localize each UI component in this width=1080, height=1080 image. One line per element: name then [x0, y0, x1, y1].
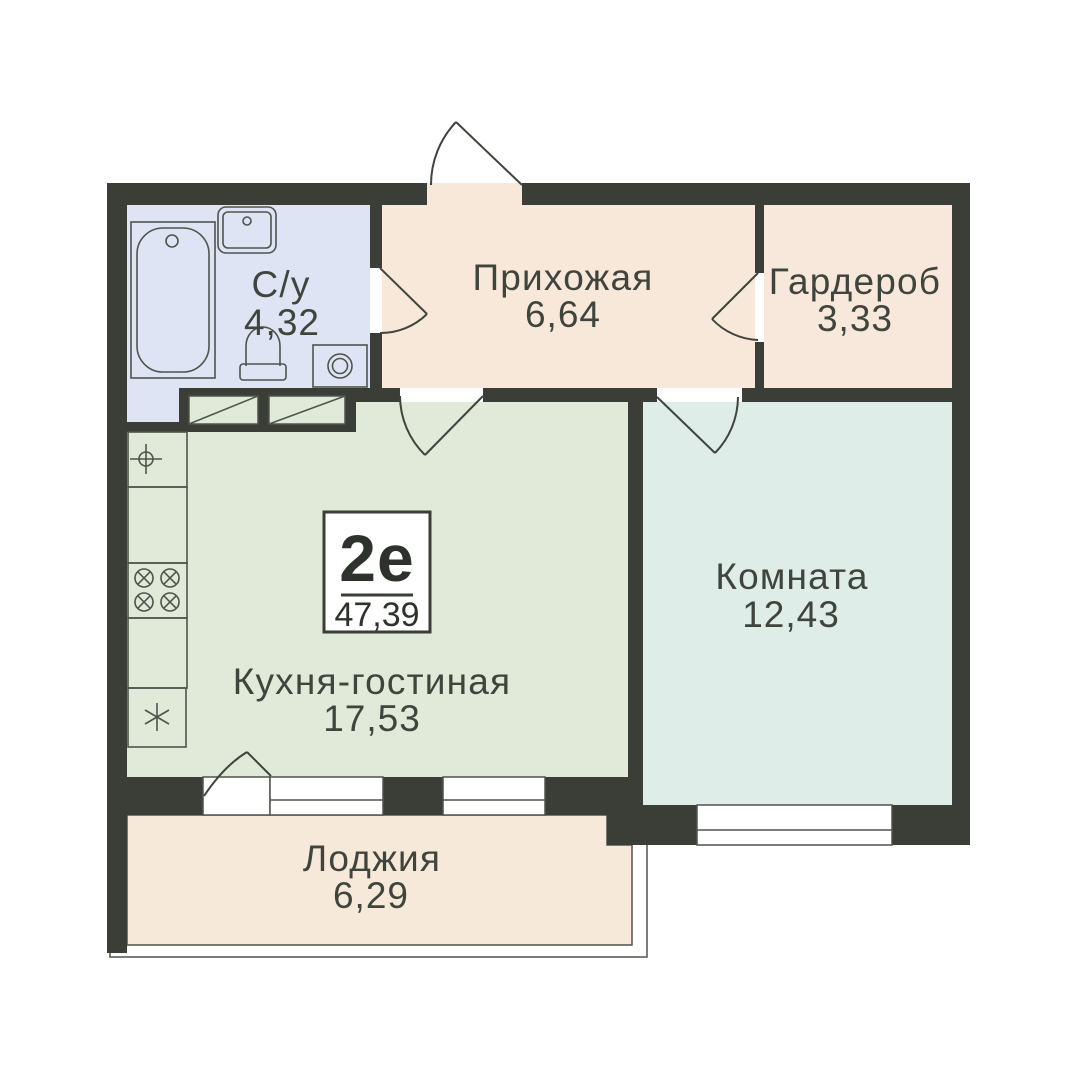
kitchen-window-2 — [443, 777, 545, 815]
loggia-label: Лоджия — [303, 838, 441, 879]
unit-badge: 2е 47,39 — [324, 512, 430, 634]
floor-plan-svg: 2е 47,39 С/у 4,32 Прихожая 6,64 Гардероб… — [0, 0, 1080, 1080]
room-label: Комната — [715, 556, 868, 597]
wardrobe-label: Гардероб — [769, 261, 941, 302]
kitchen-living-label: Кухня-гостиная — [233, 661, 512, 702]
unit-type: 2е — [339, 521, 414, 595]
room-area: 12,43 — [742, 594, 840, 635]
entrance-door — [431, 122, 522, 185]
bathroom-area: 4,32 — [244, 302, 320, 343]
hallway-area: 6,64 — [525, 294, 601, 335]
loggia-area: 6,29 — [333, 875, 409, 916]
kitchen-window-1 — [270, 777, 383, 815]
room-window — [697, 805, 892, 845]
wardrobe-area: 3,33 — [817, 298, 893, 339]
kitchen-living-area: 17,53 — [323, 698, 421, 739]
hallway-label: Прихожая — [472, 257, 653, 298]
entrance-threshold — [427, 183, 522, 205]
unit-total-area: 47,39 — [334, 596, 419, 634]
floor-plan: 2е 47,39 С/у 4,32 Прихожая 6,64 Гардероб… — [0, 0, 1080, 1080]
bathroom-label: С/у — [251, 264, 310, 305]
